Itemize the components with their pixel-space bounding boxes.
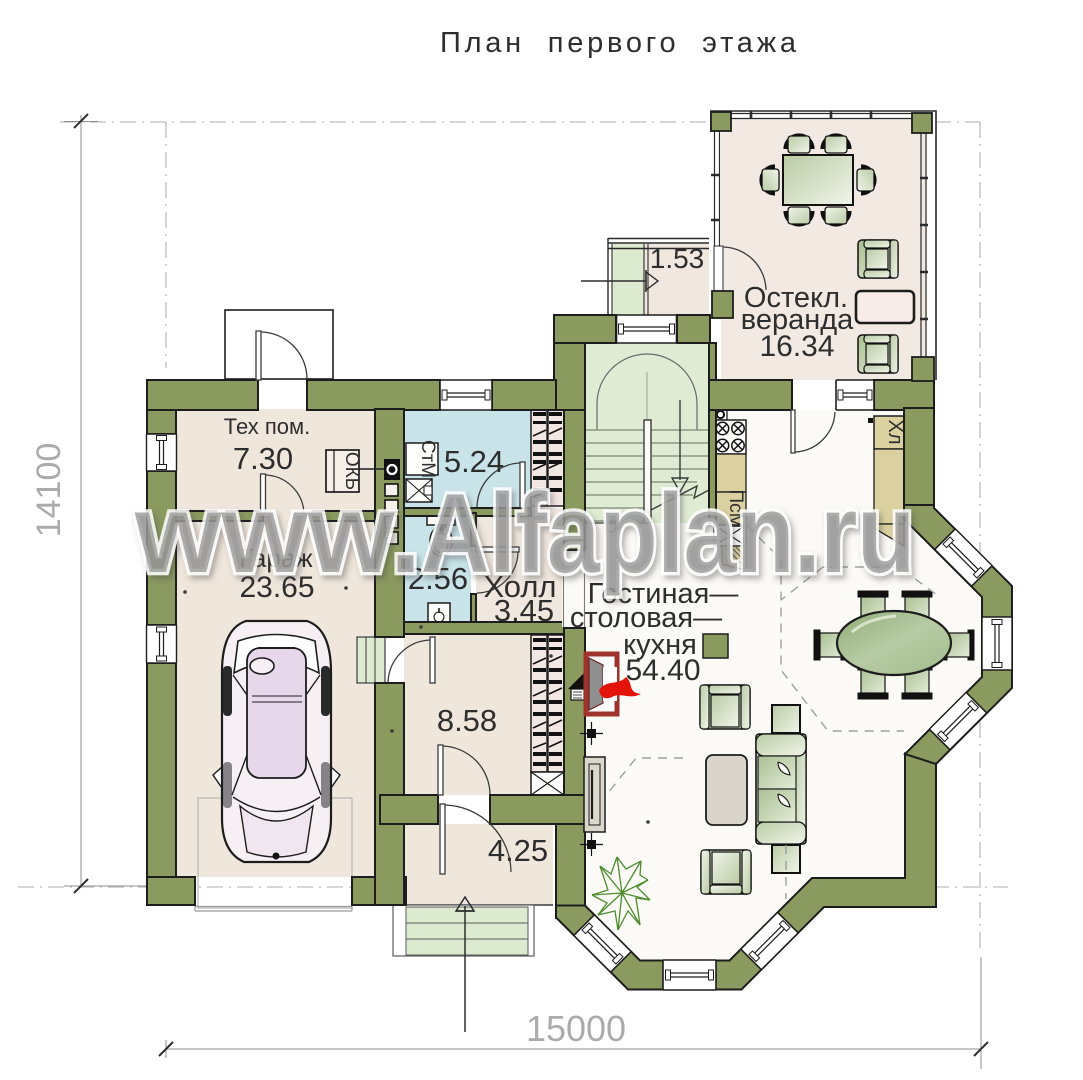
svg-text:54.40: 54.40 — [625, 654, 700, 687]
svg-text:15000: 15000 — [526, 1008, 626, 1049]
svg-text:14100: 14100 — [30, 443, 68, 538]
svg-text:8.58: 8.58 — [437, 703, 497, 738]
svg-text:3.45: 3.45 — [494, 593, 554, 628]
svg-text:4.25: 4.25 — [488, 833, 548, 868]
svg-text:План первого этажа: План первого этажа — [440, 27, 800, 59]
svg-text:Alfaplan.ru: Alfaplan.ru — [421, 471, 915, 596]
svg-text:16.34: 16.34 — [759, 330, 834, 363]
svg-text:1.53: 1.53 — [650, 243, 705, 274]
svg-text:Тех пом.: Тех пом. — [224, 414, 310, 439]
svg-text:Хл: Хл — [884, 419, 906, 444]
svg-text:www.: www. — [134, 471, 421, 596]
